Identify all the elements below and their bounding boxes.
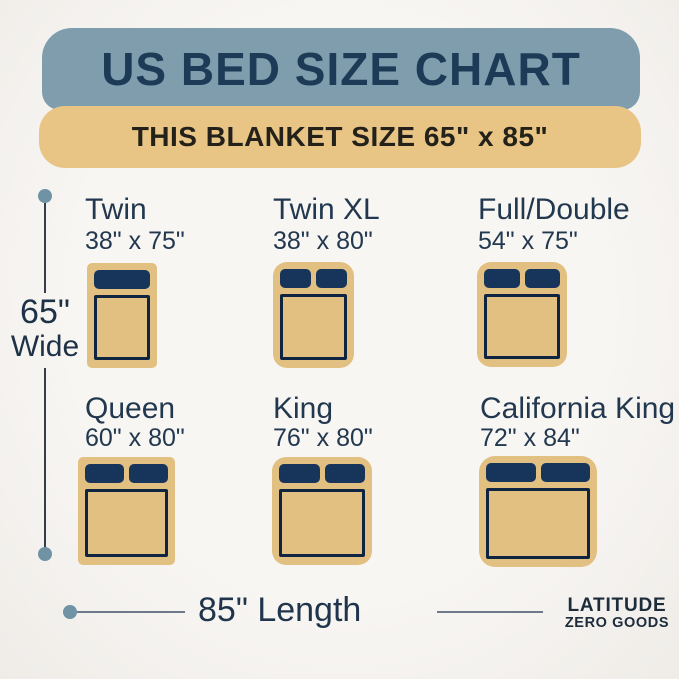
brand-logo: LATITUDE ZERO GOODS: [557, 596, 677, 631]
length-dimension-line-left: [77, 611, 185, 613]
pillow-icon: [280, 269, 311, 288]
mattress: [486, 488, 590, 559]
pillow-row: [94, 270, 150, 289]
pillow-icon: [325, 464, 366, 483]
bed-size-calking: 72" x 84": [480, 424, 580, 453]
bed-size-twin: 38" x 75": [85, 227, 185, 256]
pillow-icon: [316, 269, 347, 288]
mattress: [85, 489, 168, 557]
brand-line2: ZERO GOODS: [557, 616, 677, 631]
bed-size-queen: 60" x 80": [85, 424, 185, 453]
length-dimension-line-right: [437, 611, 543, 613]
bed-graphic-full: [477, 262, 567, 367]
mattress: [94, 295, 150, 360]
pillow-row: [486, 463, 590, 482]
blanket-size-text: THIS BLANKET SIZE 65" x 85": [132, 121, 549, 153]
mattress: [484, 294, 560, 359]
pillow-row: [85, 464, 168, 483]
brand-line1: LATITUDE: [557, 596, 677, 616]
pillow-icon: [525, 269, 561, 288]
pillow-row: [279, 464, 365, 483]
pillow-icon: [94, 270, 150, 289]
width-dimension-line-upper: [44, 203, 46, 293]
pillow-icon: [279, 464, 320, 483]
bed-size-full: 54" x 75": [478, 227, 578, 256]
bed-title-calking: California King: [480, 392, 675, 426]
pillow-icon: [85, 464, 124, 483]
width-word: Wide: [0, 331, 90, 363]
bed-title-queen: Queen: [85, 392, 175, 426]
mattress: [280, 294, 347, 360]
pillow-icon: [484, 269, 520, 288]
bed-size-twinxl: 38" x 80": [273, 227, 373, 256]
pillow-icon: [486, 463, 536, 482]
bed-title-king: King: [273, 392, 333, 426]
dimension-dot-left: [63, 605, 77, 619]
width-dimension-line-lower: [44, 368, 46, 548]
blanket-size-banner: THIS BLANKET SIZE 65" x 85": [39, 106, 641, 168]
length-dimension-label: 85" Length: [198, 591, 361, 630]
chart-title-banner: US BED SIZE CHART: [42, 28, 640, 110]
dimension-dot-top: [38, 189, 52, 203]
bed-title-twin: Twin: [85, 193, 147, 227]
bed-graphic-king: [272, 457, 372, 565]
pillow-icon: [129, 464, 168, 483]
bed-size-infographic: US BED SIZE CHART THIS BLANKET SIZE 65" …: [0, 0, 679, 679]
bed-title-full: Full/Double: [478, 193, 630, 227]
pillow-row: [280, 269, 347, 288]
mattress: [279, 489, 365, 557]
pillow-row: [484, 269, 560, 288]
bed-graphic-twinxl: [273, 262, 354, 368]
width-dimension-label: 65" Wide: [0, 295, 90, 362]
bed-graphic-queen: [78, 457, 175, 565]
bed-graphic-calking: [479, 456, 597, 567]
pillow-icon: [541, 463, 591, 482]
bed-size-king: 76" x 80": [273, 424, 373, 453]
bed-title-twinxl: Twin XL: [273, 193, 380, 227]
page-title: US BED SIZE CHART: [101, 42, 581, 96]
width-value: 65": [0, 295, 90, 331]
bed-graphic-twin: [87, 263, 157, 368]
dimension-dot-bottom: [38, 547, 52, 561]
